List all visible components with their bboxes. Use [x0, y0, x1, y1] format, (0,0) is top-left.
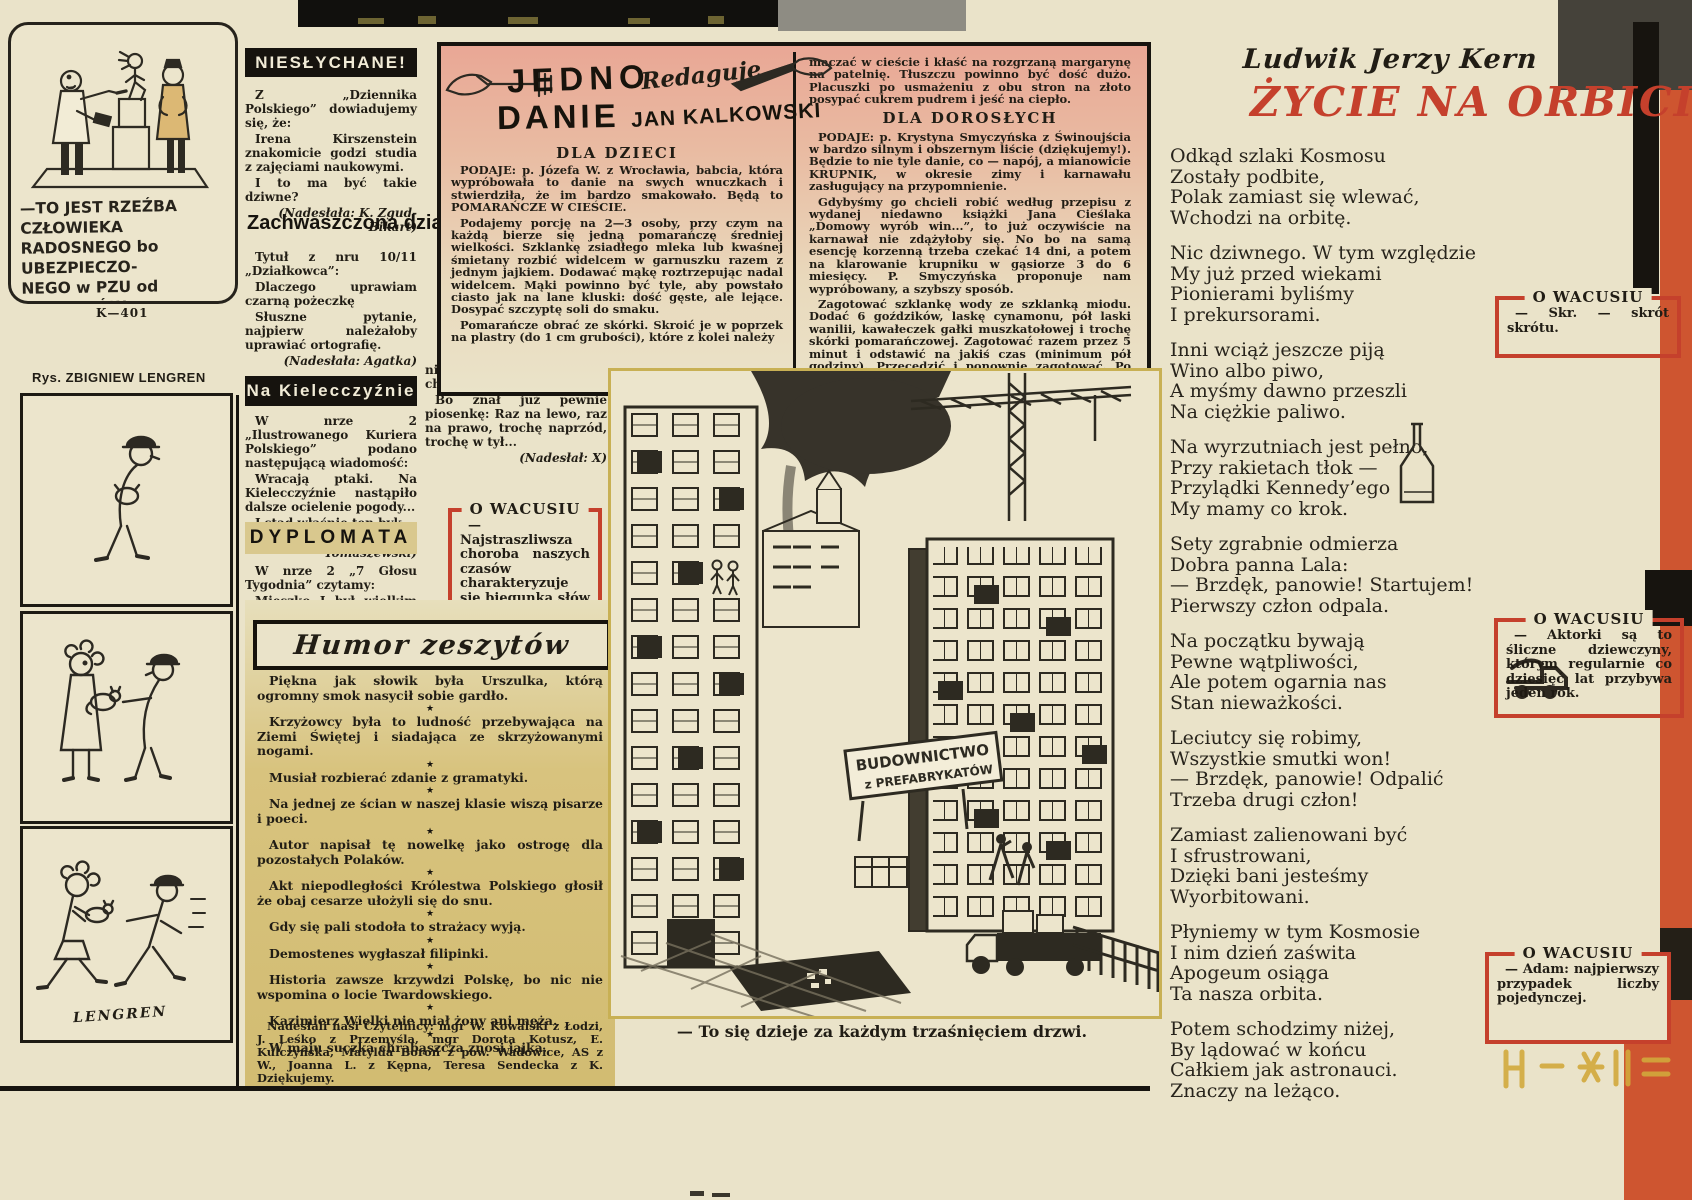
- recipe-paragraph: maczać w cieście i kłaść na rozgrzaną ma…: [809, 56, 1131, 106]
- wacusiu-box-2: O WACUSIU — Aktorki są to śliczne dziewc…: [1494, 618, 1684, 718]
- humor-entry: Akt niepodległości Królestwa Polskiego g…: [257, 879, 603, 908]
- poem-line: — Brzdęk, panowie! Odpalić: [1170, 769, 1440, 790]
- recipe-paragraph: Pomarańcze obrać ze skórki. Skroić je w …: [451, 319, 783, 344]
- kern-poem: Odkąd szlaki KosmosuZostały podbite,Pola…: [1170, 146, 1440, 1116]
- recipe-dzieci-text: PODAJE: p. Józefa W. z Wrocławia, babcia…: [451, 164, 783, 347]
- bottom-rule: [0, 1086, 1150, 1091]
- poem-line: Apogeum osiąga: [1170, 963, 1440, 984]
- recipe-box: JEDNO Redaguje DANIE JAN KALKOWSKI DLA D…: [437, 42, 1151, 396]
- poem-line: Wchodzi na orbitę.: [1170, 208, 1440, 229]
- poem-line: Stan nieważkości.: [1170, 693, 1440, 714]
- poem-stanza: Odkąd szlaki KosmosuZostały podbite,Pola…: [1170, 146, 1440, 228]
- poem-line: Ale potem ogarnia nas: [1170, 672, 1440, 693]
- humor-entry: Historia zawsze krzywdzi Polskę, bo nic …: [257, 973, 603, 1002]
- pzu-cartoon-box: —TO JEST RZEŹBA CZŁOWIEKA RADOSNEGO bo U…: [8, 22, 238, 304]
- newspaper-page: —TO JEST RZEŹBA CZŁOWIEKA RADOSNEGO bo U…: [0, 0, 1692, 1200]
- poem-line: Inni wciąż jeszcze piją: [1170, 340, 1440, 361]
- kern-title: ŻYCIE NA ORBICIE: [1250, 78, 1692, 126]
- wacusiu-box-title: O WACUSIU: [1526, 610, 1653, 628]
- zachwaszczona-article: Tytuł z nru 10/11 „Działkowca”: Dlaczego…: [245, 250, 417, 370]
- top-gray-strip: [778, 0, 966, 31]
- humor-entry: Musiał rozbierać zdanie z gramatyki.: [257, 771, 603, 786]
- poem-line: Zamiast zalienowani być: [1170, 825, 1440, 846]
- margin-scribble: [1498, 1044, 1678, 1096]
- photo-strip-marks: [298, 0, 778, 27]
- poem-line: Nic dziwnego. W tym względzie: [1170, 243, 1440, 264]
- recipe-paragraph: PODAJE: p. Józefa W. z Wrocławia, babcia…: [451, 164, 783, 214]
- humor-list: Piękna jak słowik była Urszulka, którą o…: [257, 674, 603, 1055]
- column-rule: [236, 395, 239, 1087]
- poem-stanza: Nic dziwnego. W tym względzieMy już prze…: [1170, 243, 1440, 325]
- wacusiu-box-title: O WACUSIU: [1525, 288, 1652, 306]
- poem-line: Trzeba drugi człon!: [1170, 790, 1440, 811]
- poem-line: By lądować w końcu: [1170, 1040, 1440, 1061]
- crate: [855, 857, 907, 887]
- article-credit: (Nadesłała: Agatka): [245, 354, 417, 368]
- top-photo-strip: [298, 0, 778, 27]
- dyplomata-title: DYPLOMATA: [250, 527, 413, 549]
- article-paragraph: Dlaczego uprawiam czarną pożeczkę: [245, 280, 417, 308]
- recipe-title-word1: JEDNO: [506, 58, 651, 101]
- lengren-panel-1: [20, 393, 233, 607]
- article-paragraph: Bo znał już pewnie piosenkę: Raz na lewo…: [425, 393, 607, 449]
- poem-line: Dobra panna Lala:: [1170, 555, 1440, 576]
- recipe-dorosli-heading: DLA DOROSŁYCH: [809, 109, 1131, 127]
- humor-footer: Nadesłali nasi Czytelnicy: mgr W. Kowals…: [257, 1020, 603, 1085]
- nieslychane-banner: NIESŁYCHANE!: [245, 48, 417, 77]
- wacusiu-box-1: O WACUSIU — Skr. — skrót skrótu.: [1495, 296, 1681, 358]
- humor-entry: Piękna jak słowik była Urszulka, którą o…: [257, 674, 603, 703]
- fold-mark: [712, 1193, 730, 1197]
- ink-doodle: [1504, 652, 1570, 700]
- lengren-panel-3: LENGREN: [20, 826, 233, 1043]
- article-paragraph: Wracają ptaki. Na Kielecczyźnie nastąpił…: [245, 472, 417, 514]
- recipe-paragraph: Gdybyśmy go chcieli robić według przepis…: [809, 196, 1131, 295]
- poem-stanza: Inni wciąż jeszcze pijąWino albo piwo,A …: [1170, 340, 1440, 422]
- article-credit: (Nadesłał: X): [425, 451, 607, 465]
- wacusiu-box-text: — Adam: najpierwszy przypadek liczby poj…: [1489, 956, 1667, 1012]
- poem-line: Odkąd szlaki Kosmosu: [1170, 146, 1440, 167]
- corner-dark-block: [1558, 0, 1692, 90]
- poem-line: Leciutcy się robimy,: [1170, 728, 1440, 749]
- dyplomata-banner: DYPLOMATA: [245, 522, 417, 554]
- illustration-caption: — To się dzieje za każdym trzaśnięciem d…: [620, 1022, 1144, 1041]
- kielecczyzna-title: Na Kielecczyźnie: [246, 381, 415, 401]
- mid-buildings: [763, 471, 859, 627]
- poem-line: Pewne wątpliwości,: [1170, 652, 1440, 673]
- poem-line: I nim dzień zaświta: [1170, 943, 1440, 964]
- wacusiu-box-text: — Skr. — skrót skrótu.: [1499, 300, 1677, 341]
- pzu-caption-line: —TO JEST RZEŹBA CZŁOWIEKA: [20, 195, 227, 239]
- poem-stanza: Zamiast zalienowani byćI sfrustrowani,Dz…: [1170, 825, 1440, 907]
- humor-entry: Gdy się pali stodoła to strażacy wyją.: [257, 920, 603, 935]
- article-paragraph: Z „Dziennika Polskiego” dowiadujemy się,…: [245, 88, 417, 130]
- wacusiu-box-title: O WACUSIU: [462, 500, 589, 518]
- article-paragraph: Irena Kirszenstein znakomicie godzi stud…: [245, 132, 417, 174]
- poem-line: Znaczy na leżąco.: [1170, 1081, 1440, 1102]
- poem-stanza: Na początku bywająPewne wątpliwości,Ale …: [1170, 631, 1440, 713]
- article-paragraph: Słuszne pytanie, najpierw należałoby upr…: [245, 310, 417, 352]
- wacusiu-box-3: O WACUSIU — Adam: najpierwszy przypadek …: [1485, 952, 1671, 1044]
- recipe-title-word2: DANIE: [497, 97, 620, 137]
- poem-line: Zostały podbite,: [1170, 167, 1440, 188]
- article-paragraph: W nrze 2 „7 Głosu Tygodnia” czytamy:: [245, 564, 417, 592]
- buildings-illustration: BUDOWNICTWO z PREFABRYKATÓW: [611, 371, 1159, 1016]
- poem-line: Sety zgrabnie odmierza: [1170, 534, 1440, 555]
- decanter-icon: [1386, 420, 1446, 512]
- lengren-cartoon-1: [23, 396, 223, 596]
- humor-entry: Autor napisał tę nowelkę jako ostrogę dl…: [257, 838, 603, 867]
- poem-line: Wszystkie smutki won!: [1170, 749, 1440, 770]
- poem-line: Wino albo piwo,: [1170, 361, 1440, 382]
- poem-line: Ta nasza orbita.: [1170, 984, 1440, 1005]
- humor-entry: Demostenes wygłaszał filipinki.: [257, 947, 603, 962]
- pzu-caption-line: NEGO w PZU od WYPADKÓW: [21, 275, 228, 304]
- lengren-panel-2: [20, 611, 233, 824]
- crane: [911, 373, 1131, 521]
- pzu-caption: —TO JEST RZEŹBA CZŁOWIEKA RADOSNEGO bo U…: [20, 195, 228, 304]
- humor-entry: Krzyżowcy była to ludność przebywająca n…: [257, 715, 603, 759]
- poem-line: Na początku bywają: [1170, 631, 1440, 652]
- humor-title: Humor zeszytów: [292, 630, 571, 661]
- article-paragraph: Tytuł z nru 10/11 „Działkowca”:: [245, 250, 417, 278]
- humor-header-box: Humor zeszytów: [253, 620, 611, 670]
- poem-line: Płyniemy w tym Kosmosie: [1170, 922, 1440, 943]
- pzu-ad-code: K—401: [96, 306, 148, 320]
- article-paragraph: W nrze 2 „Ilustrowanego Kuriera Polskieg…: [245, 414, 417, 470]
- fold-mark: [690, 1191, 704, 1196]
- lengren-cartoon-3: [23, 829, 223, 1029]
- poem-line: A myśmy dawno przeszli: [1170, 381, 1440, 402]
- poem-line: Potem schodzimy niżej,: [1170, 1019, 1440, 1040]
- poem-stanza: Leciutcy się robimy,Wszystkie smutki won…: [1170, 728, 1440, 810]
- article-paragraph: I to ma być takie dziwne?: [245, 176, 417, 204]
- poem-line: Polak zamiast się wlewać,: [1170, 187, 1440, 208]
- recipe-dzieci-heading: DLA DZIECI: [451, 144, 783, 162]
- poem-line: Całkiem jak astronauci.: [1170, 1060, 1440, 1081]
- kielecczyzna-banner: Na Kielecczyźnie: [245, 376, 417, 406]
- poem-line: I prekursorami.: [1170, 305, 1440, 326]
- poem-line: Pionierami byliśmy: [1170, 284, 1440, 305]
- humor-entry: Na jednej ze ścian w naszej klasie wiszą…: [257, 797, 603, 826]
- poem-line: Dzięki bani jesteśmy: [1170, 866, 1440, 887]
- star-separator: ★: [257, 759, 603, 771]
- poem-line: — Brzdęk, panowie! Startujem!: [1170, 575, 1440, 596]
- poem-line: I sfrustrowani,: [1170, 846, 1440, 867]
- poem-line: Na ciężkie paliwo.: [1170, 402, 1440, 423]
- kern-byline: Ludwik Jerzy Kern: [1242, 44, 1539, 75]
- wacusiu-box-title: O WACUSIU: [1515, 944, 1642, 962]
- nieslychane-title: NIESŁYCHANE!: [255, 53, 407, 73]
- illustration-frame: BUDOWNICTWO z PREFABRYKATÓW: [608, 368, 1162, 1019]
- poem-line: My już przed wiekami: [1170, 264, 1440, 285]
- poem-stanza: Potem schodzimy niżej,By lądować w końcu…: [1170, 1019, 1440, 1101]
- star-separator: ★: [257, 935, 603, 947]
- recipe-paragraph: Podajemy porcję na 2—3 osoby, przy czym …: [451, 217, 783, 316]
- left-tower: [625, 407, 757, 967]
- recipe-paragraph: PODAJE: p. Krystyna Smyczyńska z Świnouj…: [809, 131, 1131, 193]
- pzu-caption-line: RADOSNEGO bo UBEZPIECZO-: [20, 235, 227, 279]
- poem-stanza: Płyniemy w tym KosmosieI nim dzień zaświ…: [1170, 922, 1440, 1004]
- lengren-cartoon-2: [23, 614, 223, 814]
- lengren-byline: Rys. ZBIGNIEW LENGREN: [32, 370, 206, 385]
- knife-hand-icon: [727, 50, 837, 108]
- black-edge-bar: [1633, 22, 1659, 294]
- poem-stanza: Sety zgrabnie odmierzaDobra panna Lala:—…: [1170, 534, 1440, 616]
- poem-line: Pierwszy człon odpala.: [1170, 596, 1440, 617]
- pzu-cartoon-drawing: [17, 27, 225, 195]
- poem-line: Wyorbitowani.: [1170, 887, 1440, 908]
